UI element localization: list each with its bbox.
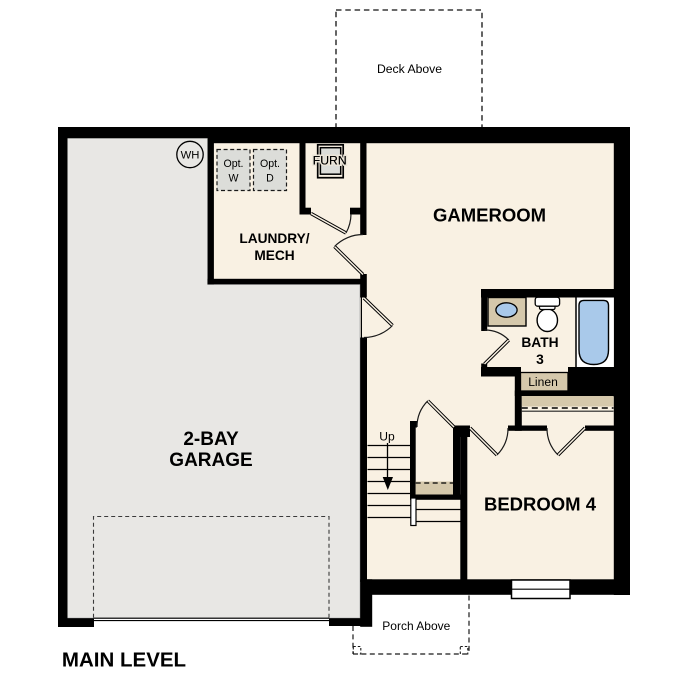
- svg-text:Up: Up: [379, 430, 395, 444]
- svg-text:Porch Above: Porch Above: [382, 619, 450, 633]
- svg-text:GARAGE: GARAGE: [169, 450, 252, 471]
- svg-text:Opt.: Opt.: [223, 158, 243, 170]
- svg-text:MAIN LEVEL: MAIN LEVEL: [62, 649, 186, 672]
- svg-text:BEDROOM 4: BEDROOM 4: [484, 494, 597, 515]
- svg-text:GAMEROOM: GAMEROOM: [433, 205, 546, 226]
- svg-text:BATH: BATH: [521, 335, 558, 350]
- svg-text:MECH: MECH: [254, 248, 294, 263]
- svg-text:Deck Above: Deck Above: [377, 62, 442, 76]
- svg-text:WH: WH: [181, 149, 200, 161]
- svg-text:Linen: Linen: [528, 375, 558, 389]
- svg-text:FURN: FURN: [313, 153, 347, 167]
- svg-text:LAUNDRY/: LAUNDRY/: [239, 231, 309, 246]
- svg-text:W: W: [229, 173, 239, 185]
- svg-text:Opt.: Opt.: [260, 158, 280, 170]
- svg-text:3: 3: [536, 352, 544, 367]
- svg-text:2-BAY: 2-BAY: [183, 429, 239, 450]
- svg-text:D: D: [266, 173, 274, 185]
